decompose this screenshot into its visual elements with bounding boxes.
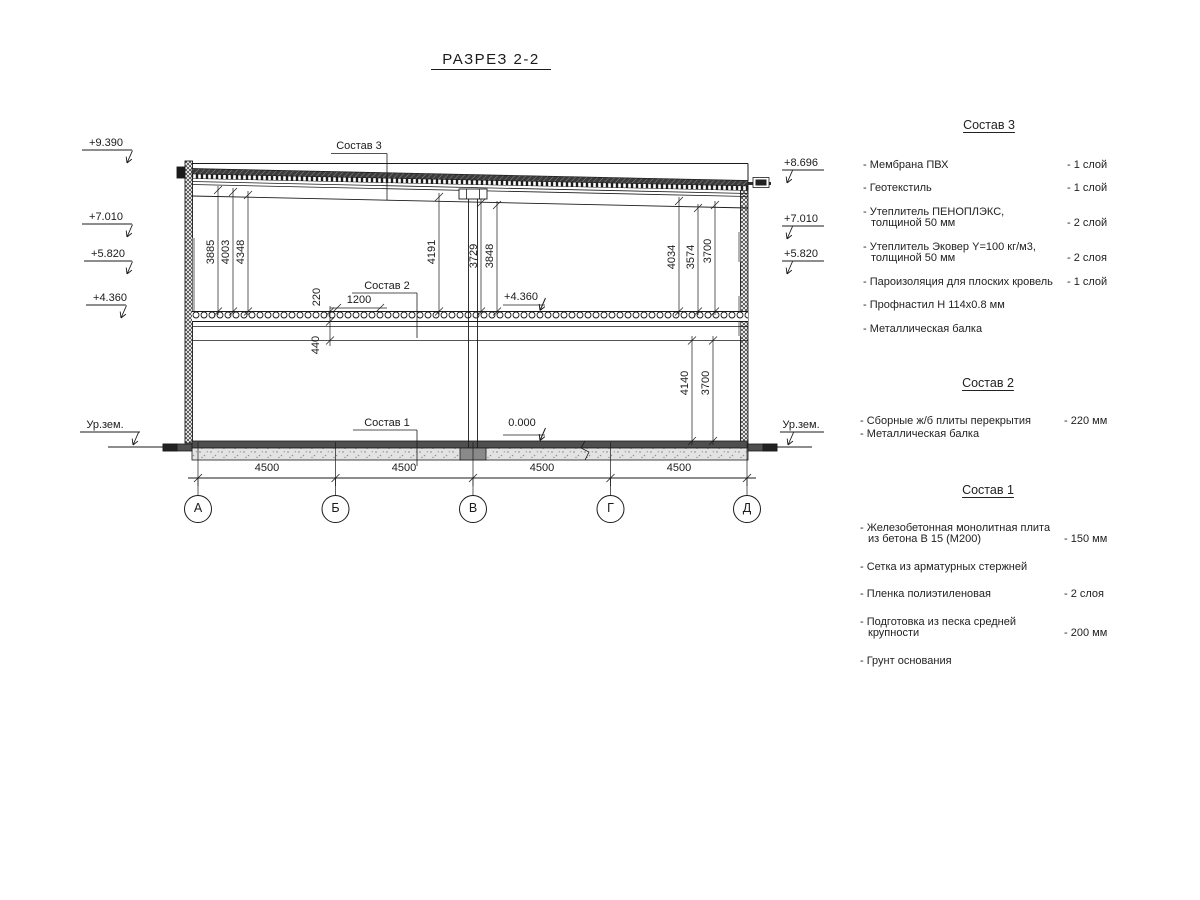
legend-sostav-1: Состав 1 - Железобетонная монолитная пли… (860, 485, 1116, 683)
legend-title: Состав 1 (860, 485, 1116, 497)
elevation-mark: +5.820 (80, 248, 136, 260)
legend-item: - Мембрана ПВХ- 1 слой (863, 160, 1115, 172)
floor-slab (192, 312, 748, 341)
axis-label: Б (325, 502, 347, 514)
legend-item: - Грунт основания (860, 656, 1116, 668)
material-name: - Утеплитель Эковер Y=100 кг/м3, толщино… (863, 242, 1067, 265)
elevation-mark: +5.820 (773, 248, 829, 260)
dimension-label: 3848 (484, 234, 496, 278)
axis-label: А (187, 502, 209, 514)
legend-item: - Подготовка из песка средней крупности-… (860, 617, 1116, 640)
material-name: - Сетка из арматурных стержней (860, 562, 1064, 574)
page-title: РАЗРЕЗ 2-2 (431, 54, 551, 70)
elevation-mark: +4.360 (82, 292, 138, 304)
drawing-sheet: РАЗРЕЗ 2-2 +9.390 +7.010 +5.820 +4.360 У… (0, 0, 1200, 900)
legend-item: - Утеплитель Эковер Y=100 кг/м3, толщино… (863, 242, 1115, 265)
dimension-label: 3574 (685, 235, 697, 279)
dimension-label: 4348 (235, 230, 247, 274)
material-qty: - 200 мм (1064, 628, 1107, 640)
dimension-label: 4500 (517, 462, 567, 474)
material-name: - Грунт основания (860, 656, 1064, 668)
legend-item: - Геотекстиль- 1 слой (863, 183, 1115, 195)
ground-level-mark: Ур.зем. (77, 419, 133, 431)
material-name: - Металлическая балка (863, 324, 1067, 336)
level-label: 0.000 (497, 417, 547, 429)
dimension-label: 4500 (242, 462, 292, 474)
elevation-mark: +8.696 (773, 157, 829, 169)
material-name: - Профнастил Н 114х0.8 мм (863, 300, 1067, 312)
elevation-mark: +7.010 (78, 211, 134, 223)
legend-sostav-3: Состав 3 - Мембрана ПВХ- 1 слой - Геотек… (863, 120, 1115, 347)
dimension-label: 4500 (379, 462, 429, 474)
material-qty: - 2 слоя (1064, 589, 1104, 601)
material-name: - Мембрана ПВХ (863, 160, 1067, 172)
dimension-label: 440 (310, 323, 322, 367)
ground-level-mark: Ур.зем. (773, 419, 829, 431)
leader-label: Состав 1 (357, 417, 417, 429)
material-qty: - 1 слой (1067, 160, 1107, 172)
legend-item: - Металлическая балка (860, 429, 1116, 441)
legend-title: Состав 3 (863, 120, 1115, 132)
dimension-label: 4500 (654, 462, 704, 474)
dimension-label: 1200 (339, 294, 379, 306)
dimension-label: 3700 (700, 361, 712, 405)
legend-item: - Сборные ж/б плиты перекрытия- 220 мм (860, 416, 1116, 428)
legend-item: - Пленка полиэтиленовая- 2 слоя (860, 589, 1116, 601)
material-name: - Пленка полиэтиленовая (860, 589, 1064, 601)
material-name: - Железобетонная монолитная плита из бет… (860, 523, 1064, 546)
leader-label: Состав 3 (329, 140, 389, 152)
legend-item: - Утеплитель ПЕНОПЛЭКС, толщиной 50 мм- … (863, 207, 1115, 230)
axis-label: Г (600, 502, 622, 514)
legend-sostav-2: Состав 2 - Сборные ж/б плиты перекрытия-… (860, 378, 1116, 443)
material-qty: - 2 слой (1067, 218, 1107, 230)
dimension-label: 4034 (666, 235, 678, 279)
walls (177, 161, 748, 443)
material-name: - Геотекстиль (863, 183, 1067, 195)
elevation-mark: +7.010 (773, 213, 829, 225)
legend-item: - Профнастил Н 114х0.8 мм (863, 300, 1115, 312)
dimension-label: 3729 (468, 234, 480, 278)
material-name: - Металлическая балка (860, 429, 1064, 441)
legend-item: - Сетка из арматурных стержней (860, 562, 1116, 574)
material-qty: - 2 слоя (1067, 253, 1107, 265)
leader-label: Состав 2 (357, 280, 417, 292)
roof-assembly (192, 164, 771, 209)
dimension-label: 3885 (205, 230, 217, 274)
axis-label: Д (736, 502, 758, 514)
elevation-mark: +9.390 (78, 137, 134, 149)
material-qty: - 1 слой (1067, 183, 1107, 195)
material-name: - Подготовка из песка средней крупности (860, 617, 1064, 640)
ground-slab (108, 441, 812, 460)
legend-item: - Металлическая балка (863, 324, 1115, 336)
dimension-label: 4003 (220, 230, 232, 274)
material-name: - Сборные ж/б плиты перекрытия (860, 416, 1064, 428)
dimension-label: 4140 (679, 361, 691, 405)
legend-item: - Пароизоляция для плоских кровель- 1 сл… (863, 277, 1115, 289)
material-name: - Утеплитель ПЕНОПЛЭКС, толщиной 50 мм (863, 207, 1067, 230)
dimension-label: 3700 (702, 229, 714, 273)
axis-label: В (462, 502, 484, 514)
dimension-label: 4191 (426, 230, 438, 274)
material-qty: - 220 мм (1064, 416, 1107, 428)
material-qty: - 150 мм (1064, 534, 1107, 546)
dimension-label: 220 (311, 275, 323, 319)
legend-item: - Железобетонная монолитная плита из бет… (860, 523, 1116, 546)
legend-title: Состав 2 (860, 378, 1116, 390)
material-name: - Пароизоляция для плоских кровель (863, 277, 1067, 289)
level-label: +4.360 (496, 291, 546, 303)
material-qty: - 1 слой (1067, 277, 1107, 289)
